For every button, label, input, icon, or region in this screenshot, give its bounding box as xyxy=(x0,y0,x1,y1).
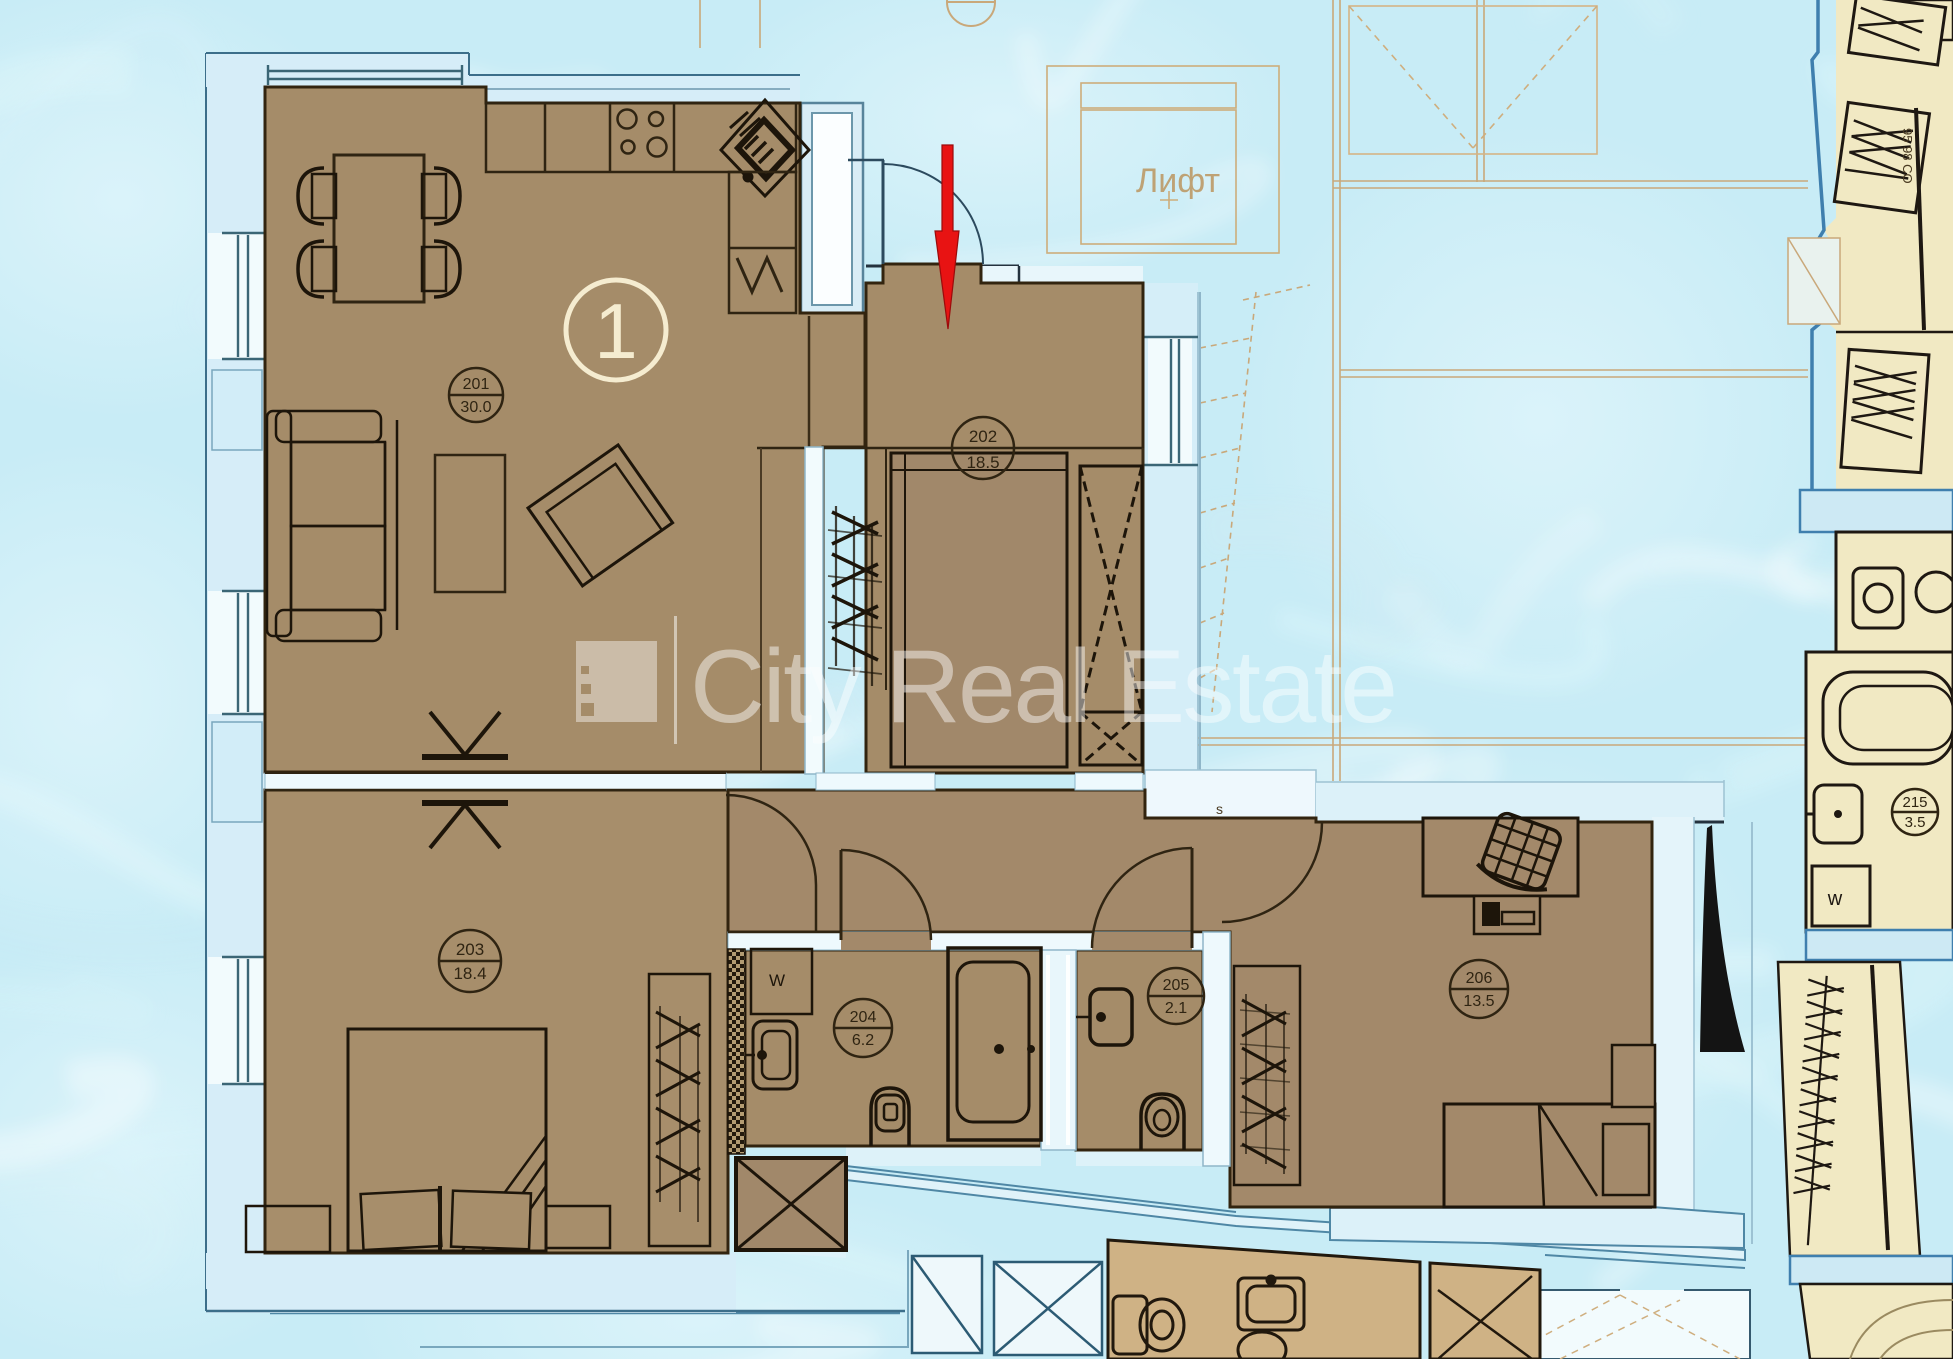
svg-text:30.0: 30.0 xyxy=(460,399,491,416)
svg-text:13.5: 13.5 xyxy=(1463,993,1494,1010)
svg-text:201: 201 xyxy=(463,376,490,393)
svg-text:204: 204 xyxy=(850,1009,877,1026)
svg-text:18.5: 18.5 xyxy=(966,453,999,472)
svg-text:s: s xyxy=(1216,801,1223,817)
svg-text:18.4: 18.4 xyxy=(453,964,486,983)
svg-text:Лифт: Лифт xyxy=(1136,162,1220,200)
svg-text:205: 205 xyxy=(1163,977,1190,994)
svg-text:2.1: 2.1 xyxy=(1165,1000,1187,1017)
svg-text:206: 206 xyxy=(1466,970,1493,987)
svg-text:215: 215 xyxy=(1902,794,1927,811)
svg-text:202: 202 xyxy=(969,427,997,446)
svg-text:W: W xyxy=(769,971,785,990)
svg-text:City Real Estate: City Real Estate xyxy=(690,629,1398,745)
svg-text:95 98 CO: 95 98 CO xyxy=(1900,128,1915,184)
svg-text:203: 203 xyxy=(456,940,484,959)
svg-text:3.5: 3.5 xyxy=(1905,814,1926,831)
svg-text:1: 1 xyxy=(594,287,637,375)
svg-text:6.2: 6.2 xyxy=(852,1032,874,1049)
svg-text:w: w xyxy=(1827,888,1843,910)
